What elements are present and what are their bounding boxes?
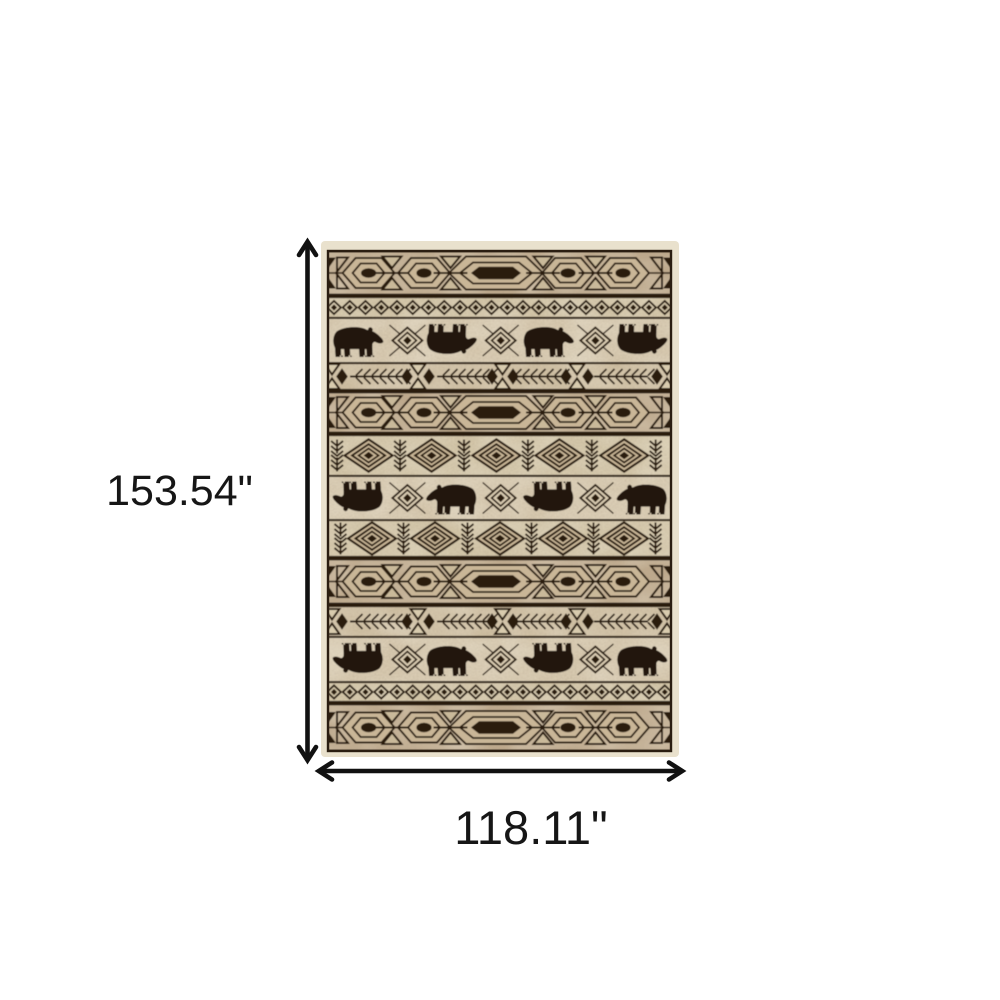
svg-text:118.11": 118.11" — [454, 801, 607, 854]
svg-text:153.54": 153.54" — [106, 467, 253, 515]
